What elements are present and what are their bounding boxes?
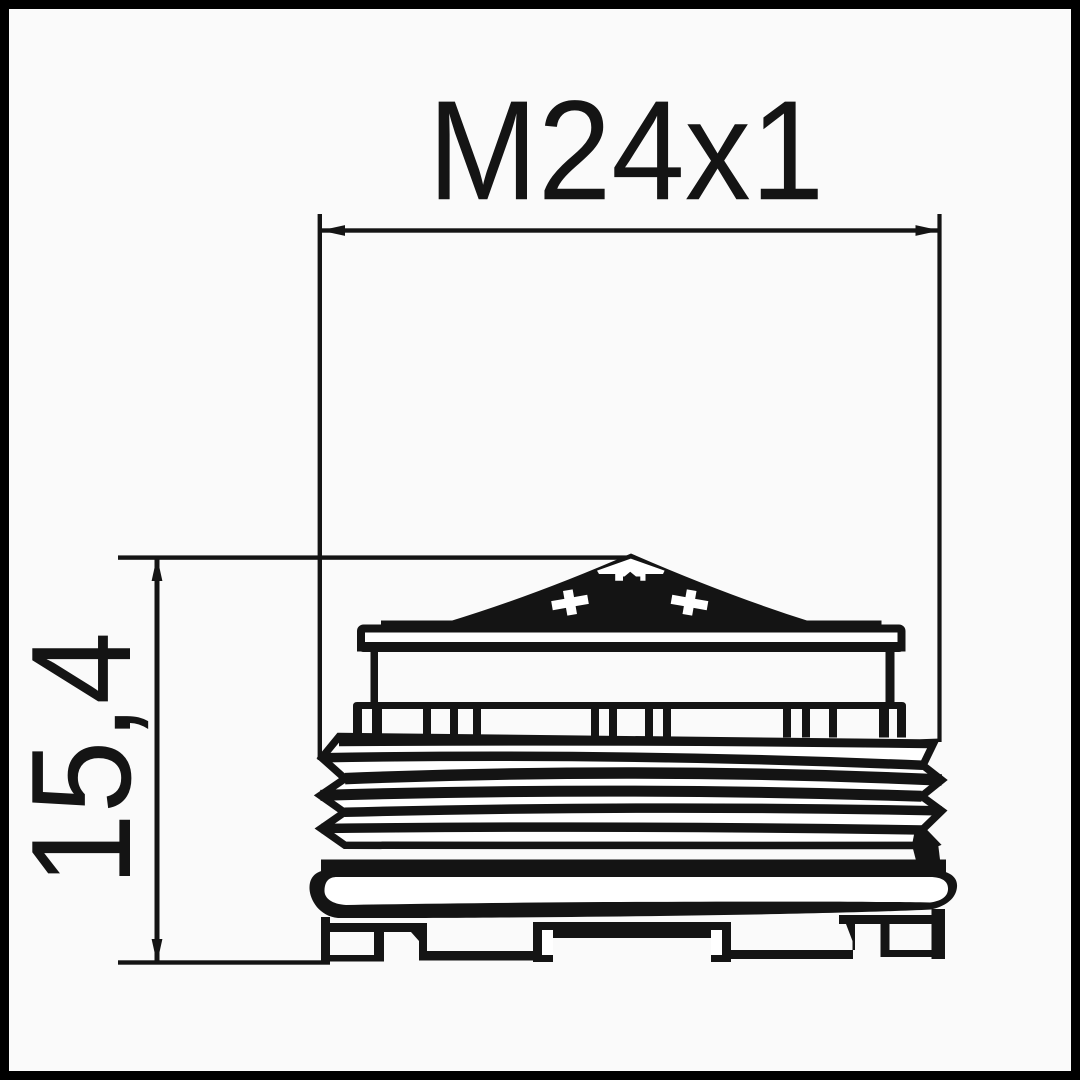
svg-text:15,4: 15,4 (1, 632, 160, 886)
svg-text:M24x1: M24x1 (428, 72, 824, 230)
